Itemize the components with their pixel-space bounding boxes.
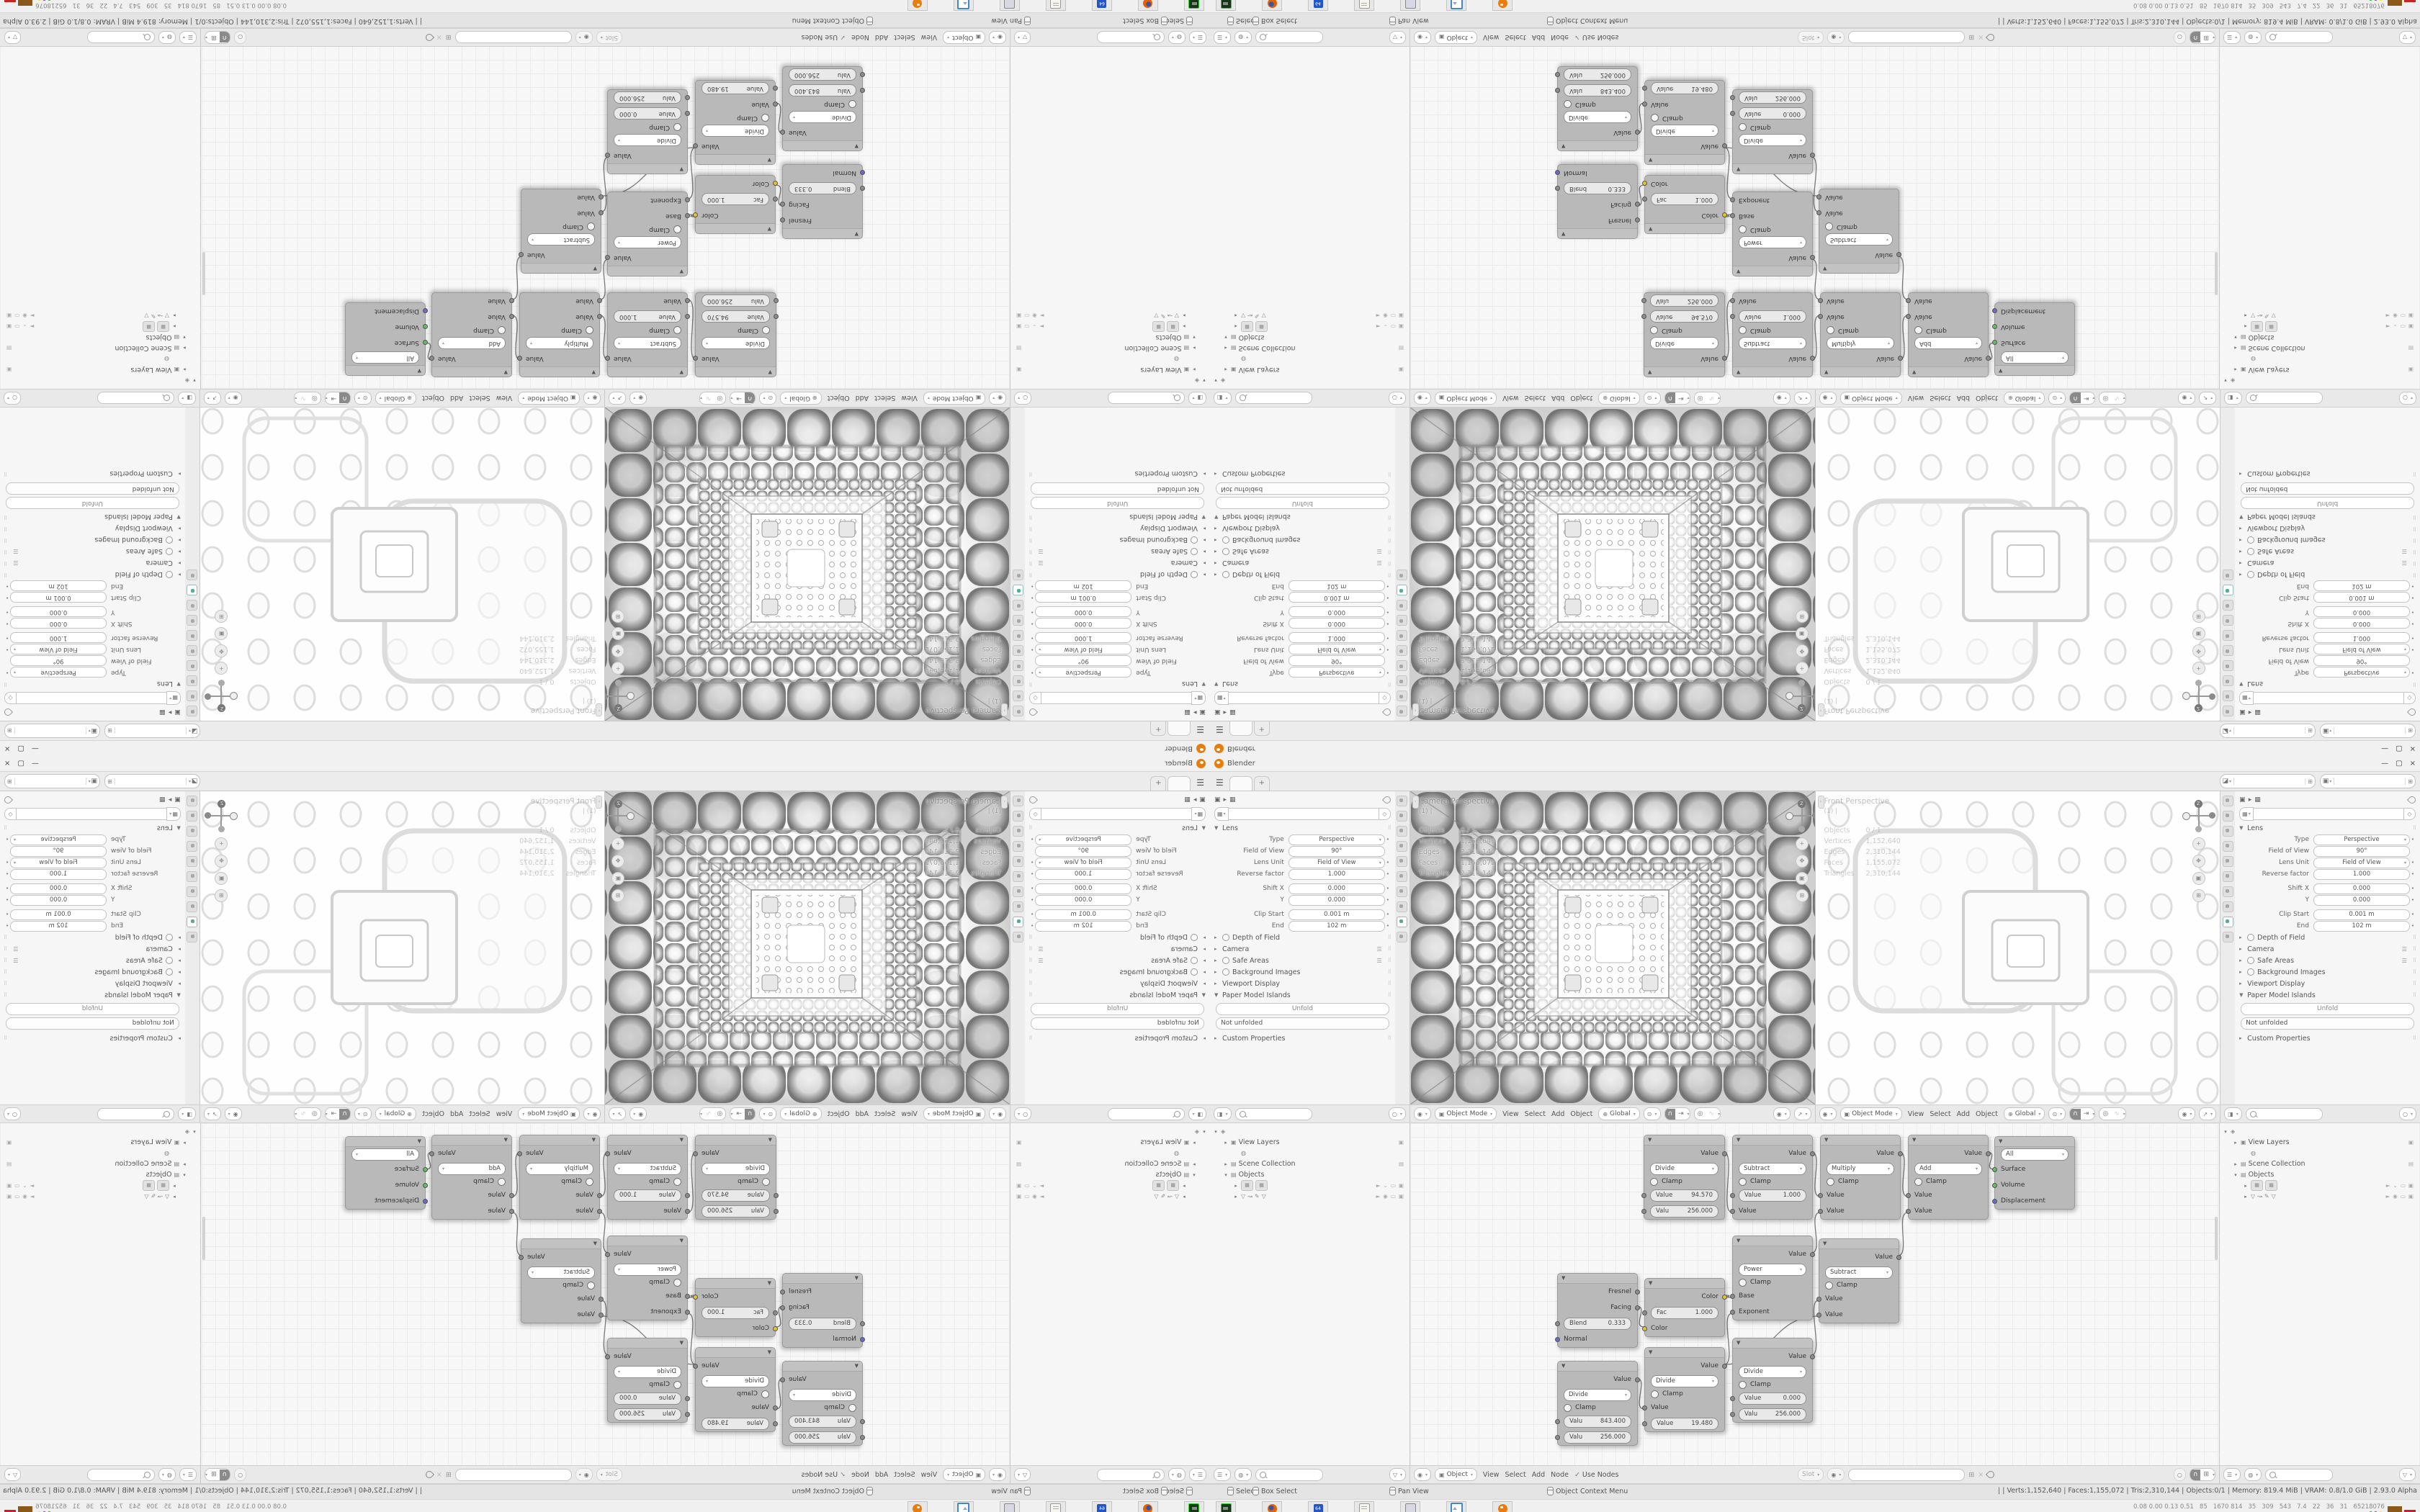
axis-x2-ball[interactable] (606, 812, 609, 819)
new-scene-icon[interactable]: ⊞ (2305, 778, 2315, 785)
magnet-icon[interactable]: ∩ (2070, 1109, 2081, 1120)
property-value-field[interactable]: 0.001 m (2313, 593, 2410, 603)
properties-tab-3[interactable] (1013, 841, 1023, 852)
output-socket[interactable] (1635, 1290, 1640, 1295)
animate-dot-icon[interactable]: • (4, 609, 10, 615)
animate-dot-icon[interactable]: • (1385, 871, 1391, 877)
property-value-field[interactable]: Perspective▾ (2313, 834, 2410, 845)
pin-icon[interactable] (424, 32, 434, 42)
properties-tab-7[interactable] (187, 901, 197, 912)
input-socket[interactable] (509, 1209, 514, 1214)
output-socket[interactable] (1986, 1151, 1991, 1156)
navigation-gizmo[interactable]: Z (606, 801, 633, 830)
menu-view[interactable]: View (1500, 1110, 1521, 1118)
menu-object[interactable]: Object (1973, 395, 2000, 402)
input-socket[interactable] (597, 1209, 602, 1214)
panel-paper-model-islands[interactable]: ▼Paper Model Islands⠿ (4, 511, 181, 523)
value-field[interactable]: Valu256.000 (1650, 1205, 1718, 1218)
camera-view-icon[interactable]: ▣ (2192, 872, 2205, 885)
panel-background-images[interactable]: ▸Background Images⠿ (4, 966, 181, 978)
properties-tab-3[interactable] (1397, 660, 1407, 671)
fake-user-icon[interactable]: ◇ (1379, 692, 1391, 704)
checkbox-icon[interactable] (1222, 571, 1229, 578)
restriction-toggles[interactable]: ►◉▭▣ (2385, 1193, 2416, 1200)
taskbar-app-floppy-64[interactable]: 64 (1308, 0, 1328, 11)
properties-tab-7[interactable] (2223, 600, 2233, 611)
property-value-field[interactable]: 0.000 (1289, 895, 1385, 906)
input-socket[interactable] (1730, 315, 1735, 320)
viewport-camera-perspective[interactable]: › Camera Perspective (1) | Objects0 / 1V… (606, 408, 1010, 721)
panel-camera[interactable]: ▸Camera☰⠿ (2239, 943, 2416, 955)
outliner-row[interactable]: ▸▽↝✎▽►◉▭▣ (1213, 310, 1407, 321)
outliner-row[interactable]: ◍ (2223, 1148, 2416, 1158)
shader-node-math-divide-f[interactable]: ▼ValueDivide▾ClampValue0.000Valu256.000 (607, 89, 688, 174)
filter-button[interactable]: ○▾ (4, 392, 21, 405)
datablock-name-field[interactable] (2254, 692, 2404, 704)
clamp-checkbox[interactable] (848, 1404, 856, 1412)
orientation-dropdown[interactable]: ⊕Global▾ (375, 392, 416, 405)
output-socket[interactable] (1722, 1364, 1727, 1369)
operation-select[interactable]: Divide▾ (1651, 1375, 1718, 1387)
proportional-icon[interactable]: ◎ (309, 1109, 321, 1120)
operation-select[interactable]: Subtract▾ (1825, 1266, 1893, 1279)
outliner-row[interactable]: ▸▽↝✎▽►◉▭▣ (4, 1191, 197, 1202)
input-socket[interactable] (685, 112, 690, 117)
animate-dot-icon[interactable]: • (2410, 583, 2416, 589)
value-field[interactable]: Value1.000 (614, 1189, 681, 1202)
snap-target-icon[interactable]: ⇥ (328, 393, 340, 404)
menu-add[interactable]: Add (1549, 395, 1567, 402)
outliner-row-scene-collection[interactable]: ▸▤Scene Collection▤ (4, 343, 197, 354)
shader-node-math-subtract-b[interactable]: ▼ValueSubtract▾ClampValue1.000Value (607, 1135, 688, 1220)
shader-node-editor[interactable]: ▼ValueDivide▾ClampValue94.570Valu256.000… (201, 1123, 1010, 1465)
clamp-checkbox[interactable] (673, 1381, 681, 1389)
restriction-toggles[interactable]: ►◉▭▣ (4, 1193, 35, 1200)
input-socket[interactable] (599, 1297, 604, 1302)
clamp-checkbox[interactable] (586, 1178, 593, 1186)
clamp-checkbox[interactable] (587, 223, 595, 231)
outliner-row[interactable]: ▾◈ (1013, 1126, 1207, 1137)
search-input[interactable] (1235, 1108, 1313, 1120)
restriction-toggles[interactable]: ▤ (4, 345, 12, 351)
ortho-toggle-icon[interactable]: ⊞ (1796, 610, 1809, 623)
animate-dot-icon[interactable]: • (2410, 923, 2416, 929)
pivot-point-button[interactable]: ◉▾ (1773, 392, 1791, 405)
editor-type-button[interactable]: ◨▾ (1214, 392, 1232, 405)
properties-tab-1[interactable] (1013, 690, 1023, 701)
value-field[interactable]: Value94.570 (702, 311, 770, 323)
panel-camera[interactable]: ▸Camera☰⠿ (2239, 557, 2416, 569)
outliner-row[interactable]: ▾◈ (2223, 375, 2416, 386)
panel-camera[interactable]: ▸Camera☰⠿ (1214, 557, 1391, 569)
magnet-icon[interactable]: ∩ (220, 1470, 230, 1480)
new-viewlayer-icon[interactable]: ⊞ (2405, 728, 2415, 734)
input-socket[interactable] (1641, 315, 1646, 320)
input-socket[interactable] (1730, 198, 1735, 203)
property-value-field[interactable]: Field of View▾ (10, 644, 107, 655)
slot-dropdown[interactable]: Slot▾ (1798, 31, 1824, 44)
output-socket[interactable] (1722, 1295, 1727, 1300)
output-socket[interactable] (605, 153, 610, 158)
proportional-icon[interactable]: ○ (2174, 1468, 2186, 1481)
value-field[interactable]: Valu256.000 (1650, 295, 1718, 307)
editor-type-button[interactable]: ◨▾ (2224, 392, 2242, 405)
clamp-checkbox[interactable] (1825, 223, 1833, 231)
menu-object[interactable]: Object (1568, 1110, 1595, 1118)
properties-tab-2[interactable] (1397, 826, 1407, 837)
clamp-checkbox[interactable] (1564, 1404, 1572, 1412)
properties-tab-1[interactable] (2223, 690, 2233, 701)
panel-paper-model-islands[interactable]: ▼Paper Model Islands⠿ (2239, 511, 2416, 523)
value-field[interactable]: Value1.000 (614, 311, 681, 323)
orientation-dropdown[interactable]: ⊕Global▾ (780, 392, 821, 405)
pan-hand-icon[interactable]: ✥ (611, 855, 624, 868)
editor-type-button[interactable]: ☰▾ (179, 1468, 197, 1481)
editor-type-button[interactable]: ◉▾ (989, 1107, 1006, 1120)
outliner-row-scene-collection[interactable]: ▸▤Scene Collection▤ (1213, 1158, 1407, 1169)
input-socket[interactable] (773, 1310, 778, 1315)
operation-select[interactable]: Divide▾ (1651, 125, 1718, 138)
filter-button[interactable]: ▽▾ (2399, 1468, 2416, 1481)
toolbar-drawer-handle[interactable]: › (596, 796, 603, 809)
editor-type-button[interactable]: ◉▾ (584, 392, 601, 405)
properties-tab-9[interactable] (1013, 570, 1023, 580)
taskbar-app-system-monitor[interactable] (1184, 1501, 1204, 1512)
properties-tab-3[interactable] (187, 841, 197, 852)
operation-select[interactable]: Add▾ (1914, 338, 1982, 350)
input-socket[interactable] (1555, 1419, 1560, 1424)
output-socket[interactable] (1722, 1151, 1727, 1156)
checkbox-icon[interactable] (1222, 536, 1229, 544)
menu-select[interactable]: Select (467, 1110, 492, 1118)
clamp-checkbox[interactable] (848, 101, 856, 109)
value-field[interactable]: Fac1.000 (702, 1307, 769, 1319)
datablock-name-field[interactable] (16, 692, 166, 704)
checkbox-icon[interactable] (166, 968, 173, 976)
proportional-icon[interactable]: ○ (234, 31, 246, 44)
menu-view[interactable]: View (1481, 34, 1502, 42)
properties-tab-6[interactable] (1013, 615, 1023, 626)
output-socket[interactable] (429, 356, 434, 361)
navigation-gizmo[interactable]: Z (207, 801, 236, 830)
input-socket[interactable] (774, 299, 779, 304)
menu-object[interactable]: Object (420, 395, 447, 402)
axis-x2-ball[interactable] (2209, 693, 2215, 700)
operation-select[interactable]: Multiply▾ (1827, 338, 1894, 350)
restriction-toggles[interactable]: ▣ (2408, 366, 2416, 373)
material-icon-button[interactable]: ◉▾ (1827, 1468, 1845, 1481)
animate-dot-icon[interactable]: • (1385, 912, 1391, 917)
input-socket[interactable] (860, 89, 865, 94)
properties-tab-9[interactable] (1397, 932, 1407, 942)
input-socket[interactable] (1730, 1310, 1735, 1315)
properties-tab-7[interactable] (1397, 901, 1407, 912)
editor-type-button[interactable]: ◨▾ (1188, 392, 1206, 405)
orientation-dropdown[interactable]: ⊕Global▾ (2004, 392, 2045, 405)
axis-y-ball[interactable] (1798, 826, 1805, 832)
clamp-checkbox[interactable] (1650, 327, 1658, 335)
input-socket[interactable] (1555, 171, 1560, 176)
falloff-icon[interactable]: ∿ (297, 1109, 309, 1120)
value-field[interactable]: Blend0.333 (789, 1318, 856, 1330)
editor-type-button[interactable]: ◉▾ (989, 392, 1006, 405)
restriction-toggles[interactable]: ▣ (4, 366, 12, 373)
panel-lens[interactable]: ▼Lens⠿ (4, 678, 181, 690)
input-socket[interactable] (860, 73, 865, 78)
pin-icon[interactable] (1382, 707, 1392, 717)
restriction-toggles[interactable]: ►⌄▭▣ (1376, 1182, 1407, 1189)
properties-tab-4[interactable] (187, 856, 197, 867)
viewport-front-perspective[interactable]: › Front Perspective (1) | Objects0 / 1Ve… (200, 408, 605, 721)
animate-dot-icon[interactable]: • (4, 860, 10, 865)
snap-toggle-group[interactable]: ∩⊞▾ (205, 1468, 230, 1481)
panel-lens[interactable]: ▼Lens⠿ (1029, 678, 1206, 690)
value-field[interactable]: Valu256.000 (702, 1205, 770, 1218)
taskbar-app-firefox[interactable] (1262, 0, 1282, 11)
snap-toggle-group[interactable]: ∩⊞▾ (205, 31, 230, 44)
property-value-field[interactable]: 0.000 (1289, 607, 1385, 618)
restriction-toggles[interactable]: ▤ (1013, 345, 1021, 351)
display-mode-button[interactable]: ◍▾ (2244, 31, 2262, 44)
panel-safe-areas[interactable]: ▸Safe Areas☰⠿ (1214, 546, 1391, 557)
input-socket[interactable] (597, 315, 602, 320)
checkbox-icon[interactable] (1222, 968, 1229, 976)
menu-object[interactable]: Object (420, 1110, 447, 1118)
search-input[interactable] (2246, 392, 2323, 405)
property-value-field[interactable]: 0.000 (1035, 883, 1131, 894)
properties-tab-9[interactable] (2223, 570, 2233, 580)
search-input[interactable] (97, 392, 175, 405)
shader-target-dropdown[interactable]: ▣Object▾ (1435, 31, 1477, 44)
magnet-icon[interactable]: ∩ (2190, 32, 2201, 43)
shader-node-math-divide-e[interactable]: ▼ValueDivide▾ClampValu843.400Valu256.000 (782, 1361, 863, 1446)
value-field[interactable]: Value19.480 (1651, 83, 1718, 95)
input-socket[interactable] (597, 1193, 602, 1198)
restriction-toggles[interactable]: ►⌄▭▣ (4, 1182, 34, 1189)
shader-node-math-subtract-b[interactable]: ▼ValueSubtract▾ClampValue1.000Value (1732, 1135, 1813, 1220)
snap-toggle-group[interactable]: ∩⇥▾ (325, 1107, 351, 1120)
animate-dot-icon[interactable]: • (4, 897, 10, 903)
editor-type-button[interactable]: ◨▾ (178, 392, 196, 405)
viewlayer-selector[interactable]: ▣▾ ⊞ (2320, 724, 2416, 738)
input-socket[interactable] (1642, 1326, 1647, 1331)
snap-toggle-group[interactable]: ∩⇥▾ (325, 392, 351, 405)
material-icon-button[interactable]: ◉▾ (575, 1468, 593, 1481)
new-material-icon[interactable]: ⊞ (1968, 1471, 1974, 1479)
animate-dot-icon[interactable]: • (2410, 647, 2416, 652)
operation-select[interactable]: Divide▾ (1650, 338, 1718, 350)
menu-select[interactable]: Select (892, 34, 917, 42)
output-socket[interactable] (1810, 356, 1815, 361)
editor-type-button[interactable]: ☰▾ (179, 31, 197, 44)
outliner-row-objects[interactable]: ▾▤Objects (1213, 332, 1407, 343)
gizmos-button[interactable]: ↗▾ (609, 392, 627, 405)
input-socket[interactable] (509, 315, 514, 320)
property-value-field[interactable]: Perspective▾ (1289, 667, 1385, 678)
snap-toggle-group[interactable]: ∩⇥▾ (730, 392, 756, 405)
output-socket[interactable] (1898, 1151, 1903, 1156)
properties-tab-9[interactable] (1397, 570, 1407, 580)
property-value-field[interactable]: 0.000 (1289, 883, 1385, 894)
search-input[interactable] (2246, 1108, 2323, 1120)
new-material-icon[interactable]: ⊞ (446, 34, 452, 42)
checkbox-icon[interactable] (166, 934, 173, 941)
property-value-field[interactable]: Perspective▾ (10, 667, 107, 678)
shader-node-math-subtract-c[interactable]: ▼ValueSubtract▾ClampValueValue (521, 189, 601, 274)
outliner-row[interactable]: ◍ (4, 1148, 197, 1158)
value-field[interactable]: Value19.480 (702, 83, 769, 95)
animate-dot-icon[interactable]: • (2410, 635, 2416, 641)
pin-icon[interactable] (1986, 1470, 1996, 1480)
viewport-camera-perspective[interactable]: › Camera Perspective (1) | Objects0 / 1V… (606, 791, 1010, 1104)
pivot-point-button[interactable]: ◉▾ (1773, 1107, 1791, 1120)
new-scene-icon[interactable]: ⊞ (105, 778, 115, 785)
animate-dot-icon[interactable]: • (2410, 621, 2416, 626)
output-socket[interactable] (1722, 144, 1727, 149)
value-field[interactable]: Value0.000 (1739, 108, 1806, 120)
restriction-toggles[interactable]: ▤ (2408, 345, 2416, 351)
proportional-edit-group[interactable]: ◎∿▾ (699, 392, 726, 405)
shader-node-math-multiply[interactable]: ▼ValueMultiply▾ClampValueValue (1820, 1135, 1901, 1220)
menu-node[interactable]: Node (849, 34, 871, 42)
animate-dot-icon[interactable]: • (1385, 647, 1391, 652)
editor-type-button[interactable]: ☰▾ (1189, 31, 1206, 44)
animate-dot-icon[interactable]: • (1029, 897, 1035, 903)
editor-type-button[interactable]: ◉▾ (1414, 392, 1431, 405)
restriction-toggles[interactable]: ►⌄▭▣ (1013, 323, 1044, 330)
value-field[interactable]: Valu843.400 (1564, 1416, 1631, 1428)
outliner-row-view-layers[interactable]: ▸▣View Layers▣ (1213, 1137, 1407, 1148)
orientation-dropdown[interactable]: ⊕Global▾ (780, 1107, 821, 1120)
snap-target-icon[interactable]: ⊞ (2200, 32, 2212, 43)
clamp-checkbox[interactable] (1739, 226, 1747, 234)
property-value-field[interactable]: 0.000 (1035, 607, 1131, 618)
unfold-button[interactable]: Unfold (1216, 497, 1389, 509)
clamp-checkbox[interactable] (761, 1390, 769, 1398)
input-socket[interactable] (1730, 1209, 1735, 1214)
zoom-icon[interactable]: + (611, 837, 624, 850)
input-socket[interactable] (685, 299, 690, 304)
property-value-field[interactable]: 1.000 (2313, 633, 2410, 644)
restriction-toggles[interactable]: ▤ (1399, 1161, 1407, 1167)
add-workspace-tab[interactable]: + (1150, 776, 1166, 791)
shader-node-math-subtract-b[interactable]: ▼ValueSubtract▾ClampValue1.000Value (607, 292, 688, 377)
axis-z-ball[interactable]: Z (218, 800, 226, 808)
snap-toggle-group[interactable]: ∩⊞▾ (2190, 31, 2215, 44)
shader-node-math-multiply[interactable]: ▼ValueMultiply▾ClampValueValue (1820, 292, 1901, 377)
new-viewlayer-icon[interactable]: ⊞ (2405, 778, 2415, 785)
camera-data-icon[interactable]: ▦▾ (166, 807, 181, 821)
outliner-row-objects[interactable]: ▾▤Objects (1013, 332, 1207, 343)
clamp-checkbox[interactable] (1651, 114, 1659, 122)
animate-dot-icon[interactable]: • (2410, 886, 2416, 891)
menu-select[interactable]: Select (892, 1471, 917, 1479)
workspace-tab[interactable] (1168, 721, 1191, 736)
filter-button[interactable]: ○▾ (1389, 1107, 1406, 1120)
properties-tab-6[interactable] (1397, 886, 1407, 897)
zoom-icon[interactable]: + (215, 837, 228, 850)
input-socket[interactable] (1641, 1209, 1646, 1214)
viewport-front-perspective[interactable]: › Front Perspective (1) | Objects0 / 1Ve… (1816, 791, 2220, 1104)
properties-tab-8[interactable] (2223, 917, 2233, 927)
zoom-icon[interactable]: + (2192, 837, 2205, 850)
snap-target-icon[interactable]: ⇥ (2081, 1109, 2092, 1120)
restriction-toggles[interactable]: ▣ (1399, 1139, 1407, 1146)
snap-target-icon[interactable]: ⇥ (328, 1109, 340, 1120)
shader-node-math-add[interactable]: ▼ValueAdd▾ClampValueValue (1908, 1135, 1989, 1220)
zoom-icon[interactable]: + (2192, 662, 2205, 675)
datablock-name-field[interactable] (16, 808, 166, 820)
magnet-icon[interactable]: ∩ (1665, 1109, 1676, 1120)
snap-target-icon[interactable]: ⊞ (208, 32, 220, 43)
input-socket[interactable] (1906, 299, 1911, 304)
checkbox-icon[interactable] (1191, 571, 1198, 578)
minimize-button[interactable]: — (32, 744, 39, 752)
output-socket[interactable] (1635, 218, 1640, 223)
properties-tab-8[interactable] (1397, 917, 1407, 927)
property-value-field[interactable]: 0.000 (1035, 618, 1131, 629)
outliner-row-scene-collection[interactable]: ▸▤Scene Collection▤ (2223, 343, 2416, 354)
properties-tab-5[interactable] (1397, 630, 1407, 641)
output-socket[interactable] (1722, 213, 1727, 218)
proportional-icon[interactable]: ◎ (1695, 1109, 1706, 1120)
clamp-checkbox[interactable] (1914, 327, 1922, 335)
use-nodes-checkbox[interactable]: ✓Use Nodes (802, 1471, 846, 1479)
outliner-row-objects[interactable]: ▾▤Objects (2223, 1169, 2416, 1180)
scrollbar[interactable] (202, 252, 205, 295)
restriction-toggles[interactable]: ►◉▭▣ (1376, 1193, 1407, 1200)
pan-hand-icon[interactable]: ✥ (2192, 644, 2205, 657)
input-socket[interactable] (1642, 1310, 1647, 1315)
operation-select[interactable]: Power▾ (614, 237, 681, 249)
menu-view[interactable]: View (899, 395, 920, 402)
property-value-field[interactable]: 1.000 (1035, 869, 1131, 880)
snap-target-icon[interactable]: ⇥ (2081, 393, 2092, 404)
camera-view-icon[interactable]: ▣ (215, 872, 228, 885)
properties-tab-1[interactable] (187, 811, 197, 822)
clamp-checkbox[interactable] (1651, 1390, 1659, 1398)
properties-tab-5[interactable] (1013, 630, 1023, 641)
shader-node-math-divide-a[interactable]: ▼ValueDivide▾ClampValue94.570Valu256.000 (1644, 1135, 1725, 1220)
properties-tab-5[interactable] (187, 871, 197, 882)
magnet-icon[interactable]: ∩ (339, 1109, 350, 1120)
restriction-toggles[interactable]: ►◉▭▣ (1013, 1193, 1044, 1200)
new-scene-icon[interactable]: ⊞ (2305, 728, 2315, 734)
properties-tab-5[interactable] (1013, 871, 1023, 882)
animate-dot-icon[interactable]: • (2410, 670, 2416, 675)
snap-link-icon[interactable]: ⊙▾ (1644, 1107, 1661, 1120)
property-value-field[interactable]: Perspective▾ (10, 834, 107, 845)
menu-view[interactable]: View (1481, 1471, 1502, 1479)
operation-select[interactable]: Subtract▾ (1825, 234, 1893, 246)
input-socket[interactable] (1555, 73, 1560, 78)
axis-x2-ball[interactable] (606, 693, 609, 700)
property-value-field[interactable]: Perspective▾ (1035, 834, 1131, 845)
camera-view-icon[interactable]: ▣ (2192, 627, 2205, 640)
shader-node-math-multiply[interactable]: ▼ValueMultiply▾ClampValueValue (519, 1135, 600, 1220)
fake-user-icon[interactable]: ◇ (4, 692, 16, 704)
editor-type-button[interactable]: ◉▾ (989, 31, 1006, 44)
shader-node-layer-weight[interactable]: ▼FresnelFacingBlend0.333Normal (782, 1273, 863, 1348)
properties-tab-6[interactable] (1397, 615, 1407, 626)
orientation-dropdown[interactable]: ⊕Global▾ (375, 1107, 416, 1120)
snap-target-icon[interactable]: ⇥ (1675, 1109, 1687, 1120)
clamp-checkbox[interactable] (1739, 327, 1747, 335)
menu-select[interactable]: Select (1502, 34, 1528, 42)
unfold-button[interactable]: Unfold (6, 1003, 179, 1015)
properties-tab-7[interactable] (2223, 901, 2233, 912)
panel-viewport-display[interactable]: ▸Viewport Display⠿ (1214, 523, 1391, 534)
